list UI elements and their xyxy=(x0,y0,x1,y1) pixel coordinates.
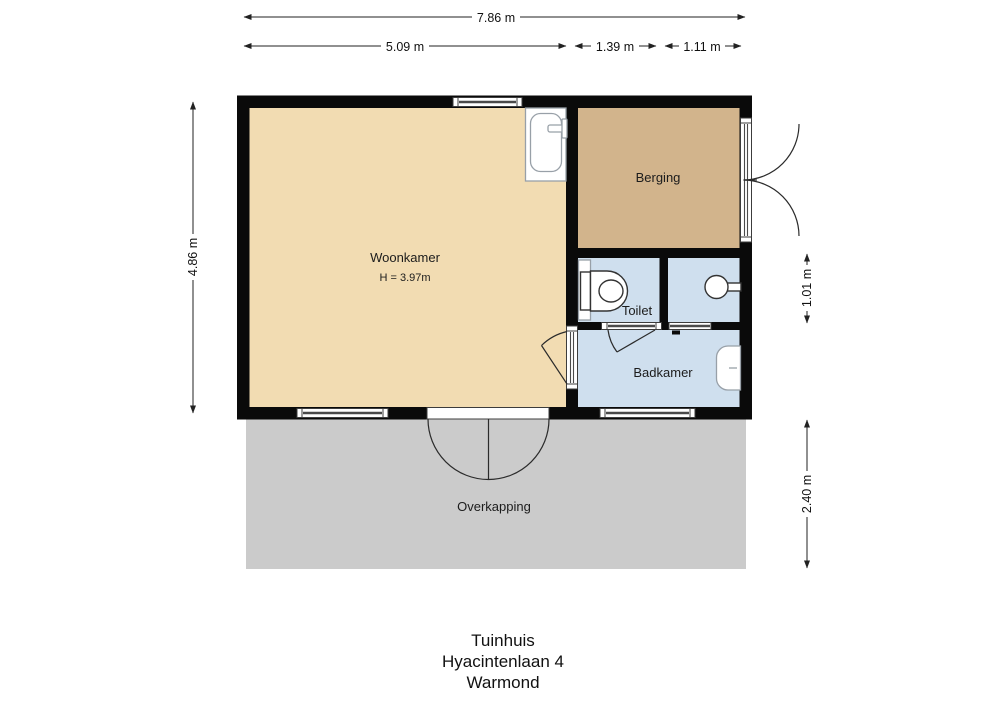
floorplan-page: Woonkamer H = 3.97m Berging Toilet Badka… xyxy=(0,0,1000,707)
dimension-right-section: 1.11 m xyxy=(665,39,741,54)
label-woonkamer: Woonkamer xyxy=(370,250,441,265)
svg-text:4.86 m: 4.86 m xyxy=(186,238,200,276)
dimension-total-width: 7.86 m xyxy=(244,10,745,25)
svg-text:1.39 m: 1.39 m xyxy=(596,40,634,54)
wall-stub xyxy=(672,331,680,335)
svg-text:5.09 m: 5.09 m xyxy=(386,40,424,54)
svg-text:1.01 m: 1.01 m xyxy=(800,269,814,307)
label-badkamer: Badkamer xyxy=(633,365,693,380)
floorplan-drawing: Woonkamer H = 3.97m Berging Toilet Badka… xyxy=(0,0,1000,707)
room-overkapping-floor xyxy=(246,419,746,569)
window-toilet-interior xyxy=(602,323,662,330)
shower-tray-fixture xyxy=(717,346,741,390)
svg-text:2.40 m: 2.40 m xyxy=(800,475,814,513)
dimension-building-height: 4.86 m xyxy=(186,102,200,413)
kitchen-sink-unit xyxy=(526,108,568,181)
dimension-overkapping-depth: 2.40 m xyxy=(800,420,814,568)
label-overkapping: Overkapping xyxy=(457,499,531,514)
svg-text:1.11 m: 1.11 m xyxy=(683,40,720,54)
title-line2: Hyacintenlaan 4 xyxy=(442,652,564,671)
svg-text:7.86 m: 7.86 m xyxy=(477,11,515,25)
dimension-toilet-row-height: 1.01 m xyxy=(800,254,814,323)
window-badkamer-bottom xyxy=(600,409,695,418)
dimension-middle-section: 1.39 m xyxy=(575,39,656,54)
window-washroom-interior xyxy=(669,323,711,330)
window-woonkamer-top xyxy=(453,98,522,107)
title-line3: Warmond xyxy=(466,673,539,692)
dimension-left-section: 5.09 m xyxy=(244,39,566,54)
label-woonkamer-height: H = 3.97m xyxy=(379,272,430,284)
title-line1: Tuinhuis xyxy=(471,631,535,650)
door-berging-exterior xyxy=(741,118,800,242)
label-berging: Berging xyxy=(636,170,681,185)
window-woonkamer-bottom xyxy=(297,409,388,418)
label-toilet: Toilet xyxy=(622,303,653,318)
